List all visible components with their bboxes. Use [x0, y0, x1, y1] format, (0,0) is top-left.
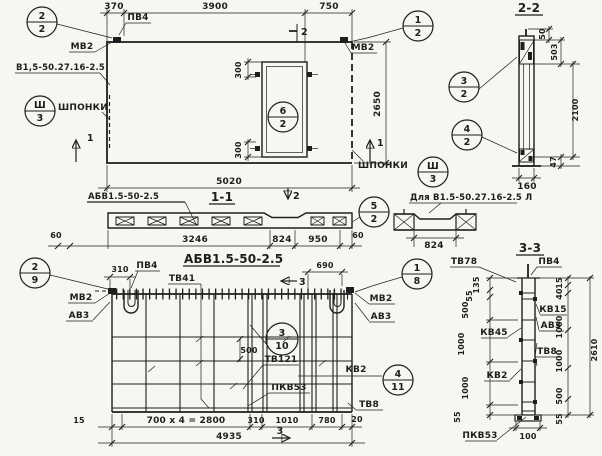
callout-2-9: 2 9: [20, 258, 116, 291]
label-panel-mark: В1,5-50.27.16-2.5: [16, 63, 105, 73]
plan-bottom-dim: 5020: [98, 165, 360, 192]
elevation-abv: АБВ1.5-50-2.5: [20, 252, 432, 447]
variant-section: Для В1.5-50.27.16-2.5 Л 824: [394, 193, 532, 251]
callout-2-2-pos: 2 2: [27, 7, 112, 38]
section-1-1-label: АБВ1.5-50-2.5: [88, 192, 159, 202]
svg-text:3: 3: [299, 277, 306, 288]
svg-text:10: 10: [275, 341, 289, 352]
label-keys-left: ШПОНКИ: [58, 103, 108, 113]
callout-keys-left: Ш 3: [25, 96, 55, 126]
svg-text:1: 1: [414, 263, 421, 274]
svg-text:2: 2: [280, 119, 287, 130]
svg-text:3: 3: [461, 76, 468, 87]
label-kv45: КВ45: [480, 328, 508, 338]
dim-3246: 3246: [182, 235, 208, 245]
svg-text:2: 2: [464, 137, 471, 148]
dim-310-top: 310: [111, 265, 129, 274]
svg-text:1000: 1000: [555, 315, 564, 338]
cut-marks: 2 1 1: [76, 24, 384, 162]
section-1-1-title: 1-1: [211, 190, 233, 204]
section-1-1: АБВ1.5-50-2.5 1-1 2 60 3246 8: [48, 188, 532, 251]
svg-text:1000: 1000: [461, 376, 470, 399]
svg-text:2: 2: [415, 28, 422, 39]
label-kv2-elev: КВ2: [345, 365, 366, 375]
label-tv121: ТВ121: [265, 355, 298, 365]
cut-1-left: 1: [87, 133, 94, 144]
section-3-3-geometry: [515, 264, 541, 421]
cut-2-bottom-mark: 2: [288, 188, 300, 202]
section-3-3: 3-3 ТВ78 ПВ4 КВ15 АВ3 Т: [450, 241, 599, 441]
dim-100: 100: [519, 432, 537, 441]
section-3-3-labels: ТВ78 ПВ4 КВ15 АВ3 ТВ8 КВ45 КВ2 ПКВ53: [450, 257, 567, 441]
dim-300-bottom: 300: [234, 141, 243, 159]
callout-3-2: 3 2: [449, 57, 517, 102]
svg-text:5: 5: [371, 201, 378, 212]
svg-text:4: 4: [464, 124, 471, 135]
svg-text:15: 15: [555, 277, 564, 289]
dim-700x4: 700 x 4 = 2800: [147, 416, 226, 426]
dim-2650: 2650: [373, 91, 383, 117]
drawing-canvas: 370 3900 750 5020 2650 300 300 2: [0, 0, 602, 456]
label-kv2-s33: КВ2: [486, 371, 507, 381]
elevation-left-labels: 2 9 310 ПВ4 ТВ41 МВ2 АВ3: [20, 258, 201, 321]
callout-4-2: 4 2: [452, 120, 517, 153]
svg-text:2: 2: [39, 11, 46, 22]
svg-text:55: 55: [453, 411, 462, 423]
dim-3900: 3900: [202, 2, 228, 12]
callout-3-10: 3 10: [266, 323, 298, 355]
dim-750: 750: [319, 2, 338, 12]
svg-text:11: 11: [391, 382, 405, 393]
dim-60-right: 60: [352, 231, 364, 240]
dim-2610: 2610: [590, 338, 599, 361]
label-tv78: ТВ78: [451, 257, 477, 267]
svg-text:55: 55: [555, 413, 564, 425]
section-1-1-dims: 60 3246 824 950 60: [48, 230, 364, 249]
label-pkv53-s33: ПКВ53: [462, 431, 497, 441]
label-av3-elev-left: АВ3: [69, 311, 90, 321]
section-2-2-title: 2-2: [518, 1, 540, 15]
slab-voids: [116, 217, 346, 225]
rebar-grid: [95, 284, 354, 412]
dim-4935: 4935: [216, 432, 242, 442]
section-2-2-dims: 50 503 2100 47 160: [512, 26, 580, 192]
plan-view: 370 3900 750 5020 2650 300 300 2: [15, 2, 448, 192]
cut-2-top: 2: [301, 27, 308, 38]
svg-text:3: 3: [430, 174, 437, 185]
dim-47: 47: [549, 156, 558, 168]
svg-text:Ш: Ш: [34, 100, 46, 111]
svg-text:2: 2: [461, 89, 468, 100]
label-tv8-elev: ТВ8: [359, 400, 379, 410]
dim-503: 503: [550, 43, 559, 60]
svg-text:1000: 1000: [555, 349, 564, 372]
label-av3-elev-right: АВ3: [371, 312, 392, 322]
svg-text:500: 500: [461, 301, 470, 319]
elevation-bottom-dims: 15 700 x 4 = 2800 310 1010 780 20 4935 3: [73, 414, 365, 447]
embed-mv2-left: [113, 37, 121, 43]
svg-text:3: 3: [279, 328, 286, 339]
svg-text:2: 2: [39, 24, 46, 35]
section-3-3-title: 3-3: [519, 241, 541, 255]
svg-text:55: 55: [465, 290, 474, 302]
embed-right: [346, 287, 354, 293]
elevation-title: АБВ1.5-50-2.5: [184, 252, 283, 266]
svg-text:3: 3: [37, 113, 44, 124]
section-2-2: 2-2 50 503 2100 47: [449, 1, 580, 192]
embed-mv2-right: [340, 37, 348, 43]
dim-15: 15: [73, 416, 85, 425]
svg-text:6: 6: [280, 106, 287, 117]
dim-824-variant: 824: [424, 241, 443, 251]
dim-20: 20: [351, 415, 363, 424]
label-pv4: ПВ4: [127, 13, 148, 23]
svg-text:2: 2: [32, 262, 39, 273]
label-pkv53: ПКВ53: [271, 383, 306, 393]
dim-60-left: 60: [50, 231, 62, 240]
slab-section-geometry: [108, 213, 352, 228]
callout-1-8: 1 8: [355, 259, 432, 292]
svg-text:8: 8: [414, 276, 421, 287]
label-mv2-left: МВ2: [71, 42, 94, 52]
cut-3-bottom-mark: 3: [272, 426, 290, 438]
dim-500: 500: [240, 346, 258, 355]
plan-right-dim: 2650: [354, 39, 391, 166]
panel-outline: [107, 37, 352, 163]
svg-text:3: 3: [277, 426, 284, 437]
dim-780: 780: [318, 416, 336, 425]
dim-310-bottom: 310: [247, 416, 265, 425]
callout-keys-right: Ш 3: [418, 157, 448, 187]
dim-1010: 1010: [275, 416, 298, 425]
dim-824: 824: [272, 235, 291, 245]
callout-1-2-pos: 1 2: [349, 11, 433, 42]
label-tv41: ТВ41: [169, 274, 195, 284]
svg-text:500: 500: [555, 387, 564, 405]
svg-text:40: 40: [555, 288, 564, 300]
dim-370: 370: [104, 2, 123, 12]
cut-1-right: 1: [377, 138, 384, 149]
callout-6-2-opening: 6 2: [268, 102, 298, 132]
callout-5-2: 5 2: [352, 197, 389, 227]
dim-690: 690: [316, 261, 334, 270]
svg-text:9: 9: [32, 275, 39, 286]
label-mv2-elev-left: МВ2: [70, 293, 93, 303]
dim-160: 160: [517, 182, 536, 192]
dim-50: 50: [538, 28, 547, 40]
label-kv15: КВ15: [539, 305, 567, 315]
label-keys-right: ШПОНКИ: [358, 161, 408, 171]
label-pv4-elev: ПВ4: [136, 261, 157, 271]
svg-text:Ш: Ш: [427, 161, 439, 172]
label-pv4-s33: ПВ4: [538, 257, 559, 267]
svg-text:1000: 1000: [457, 332, 466, 355]
dim-950: 950: [308, 235, 327, 245]
plan-top-dims: 370 3900 750: [100, 2, 355, 62]
dim-5020: 5020: [216, 177, 242, 187]
callout-4-11: 4 11: [383, 365, 413, 395]
label-mv2-right: МВ2: [352, 43, 375, 53]
variant-label: Для В1.5-50.27.16-2.5 Л: [410, 193, 532, 203]
cut-3-top-mark: 3: [281, 277, 306, 288]
dim-300-top: 300: [234, 61, 243, 79]
label-tv8-s33: ТВ8: [537, 347, 557, 357]
svg-text:1: 1: [415, 15, 422, 26]
label-mv2-elev-right: МВ2: [370, 294, 393, 304]
plan-labels: ПВ4 МВ2 МВ2 В1,5-50.27.16-2.5 ШПОНКИ ШПО…: [15, 13, 408, 171]
blueprint-sheet: 370 3900 750 5020 2650 300 300 2: [0, 0, 602, 456]
section-2-2-geometry: [512, 29, 541, 166]
svg-text:2: 2: [371, 214, 378, 225]
section-3-3-left-dims: 135 55 500 1000 1000 55: [453, 275, 518, 423]
dim-2100: 2100: [571, 98, 580, 121]
svg-text:2: 2: [293, 191, 300, 202]
svg-text:4: 4: [395, 369, 402, 380]
